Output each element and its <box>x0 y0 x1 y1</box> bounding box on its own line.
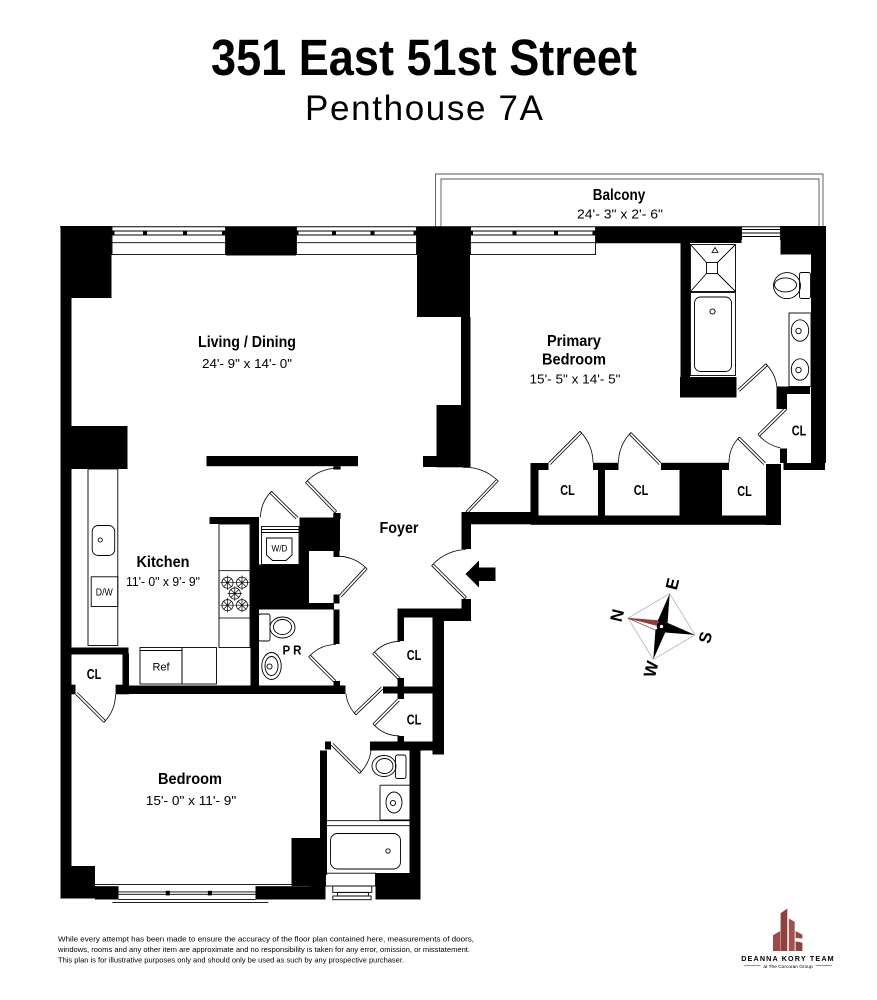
svg-text:24'- 9" x 14'- 0": 24'- 9" x 14'- 0" <box>202 356 292 371</box>
svg-text:CL: CL <box>560 483 575 499</box>
svg-text:W/D: W/D <box>272 544 288 554</box>
svg-text:Balcony: Balcony <box>593 187 646 204</box>
svg-text:CL: CL <box>792 424 807 440</box>
svg-text:15'- 5" x 14'- 5": 15'- 5" x 14'- 5" <box>530 372 621 387</box>
svg-text:Living / Dining: Living / Dining <box>198 334 296 351</box>
svg-text:D/W: D/W <box>96 588 113 599</box>
svg-text:P R: P R <box>283 643 303 658</box>
svg-text:15'- 0" x 11'- 9": 15'- 0" x 11'- 9" <box>146 793 237 808</box>
svg-text:windows, rooms and any other i: windows, rooms and any other item are ap… <box>57 945 470 954</box>
svg-text:CL: CL <box>407 648 422 664</box>
svg-text:at The Corcoran Group: at The Corcoran Group <box>763 964 813 970</box>
svg-text:11'- 0" x 9'- 9": 11'- 0" x 9'- 9" <box>126 574 200 589</box>
svg-text:Bedroom: Bedroom <box>158 771 222 788</box>
svg-text:CL: CL <box>87 667 102 683</box>
svg-text:Kitchen: Kitchen <box>137 554 190 571</box>
svg-text:351 East 51st Street: 351 East 51st Street <box>211 29 637 86</box>
svg-text:CL: CL <box>634 483 649 499</box>
svg-text:24'- 3" x 2'- 6": 24'- 3" x 2'- 6" <box>577 207 663 222</box>
svg-text:This plan is for illustrative: This plan is for illustrative purposes o… <box>58 956 404 965</box>
svg-text:Primary: Primary <box>547 333 601 350</box>
svg-text:Foyer: Foyer <box>380 520 419 537</box>
svg-text:CL: CL <box>407 713 422 729</box>
svg-text:While every attempt has been m: While every attempt has been made to ens… <box>58 935 474 944</box>
svg-text:Ref: Ref <box>152 662 170 674</box>
svg-text:DEANNA KORY TEAM: DEANNA KORY TEAM <box>741 954 835 963</box>
svg-text:CL: CL <box>737 484 752 500</box>
svg-text:Bedroom: Bedroom <box>542 352 606 369</box>
